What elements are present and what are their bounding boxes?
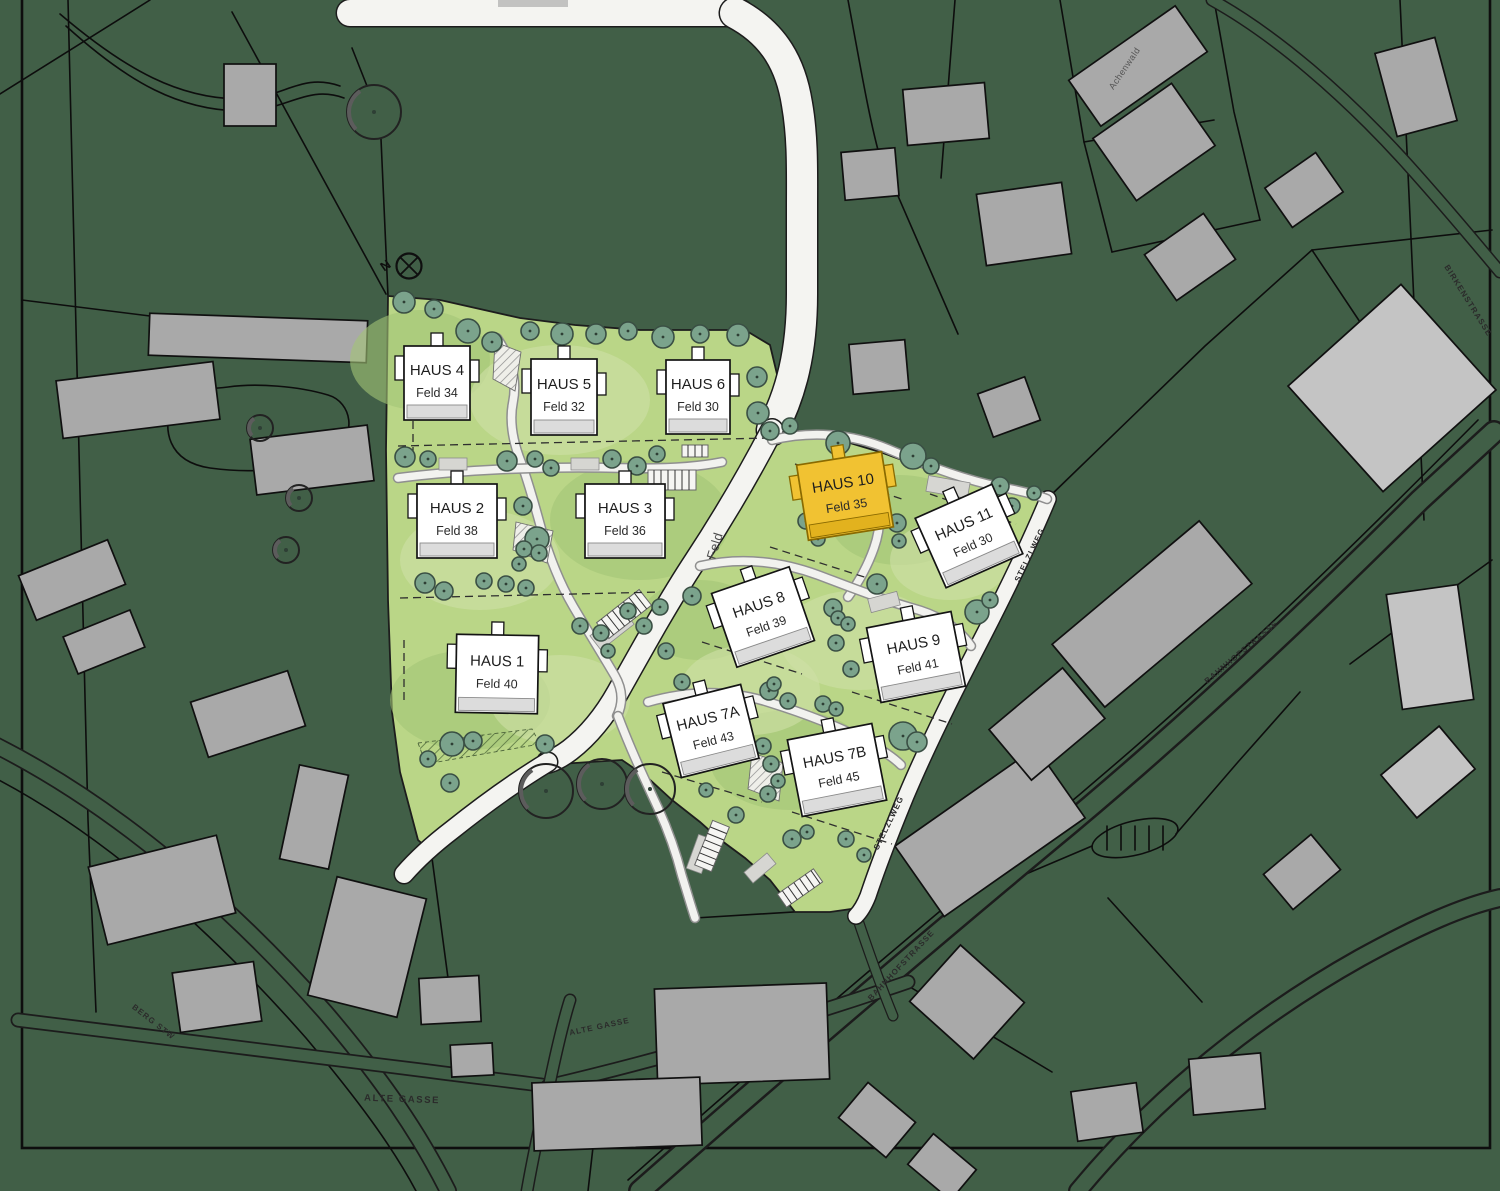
- house-terrace: [588, 543, 662, 556]
- tree-center-dot: [832, 607, 835, 610]
- tree-center-dot: [427, 458, 430, 461]
- building-footprint: [849, 340, 909, 395]
- tree-center-dot: [427, 758, 430, 761]
- house-name-label: HAUS 1: [470, 653, 524, 671]
- tree-center-dot: [787, 700, 790, 703]
- tree-center-dot: [529, 330, 532, 333]
- tree-center-dot: [611, 458, 614, 461]
- house-block-haus-2[interactable]: HAUS 2Feld 38: [408, 471, 506, 558]
- tree-center-dot: [691, 595, 694, 598]
- paved-pad: [439, 458, 467, 470]
- tree-center-dot: [284, 548, 288, 552]
- house-feld-label: Feld 40: [476, 677, 518, 692]
- tree-center-dot: [579, 625, 582, 628]
- tree-center-dot: [525, 587, 528, 590]
- tree-center-dot: [258, 426, 262, 430]
- house-name-label: HAUS 6: [671, 376, 725, 393]
- tree-center-dot: [902, 735, 905, 738]
- tree-center-dot: [483, 580, 486, 583]
- tree-center-dot: [976, 611, 979, 614]
- tree-center-dot: [297, 496, 301, 500]
- tree-center-dot: [522, 505, 525, 508]
- tree-center-dot: [837, 617, 840, 620]
- house-feld-label: Feld 30: [677, 400, 719, 414]
- house-feld-label: Feld 38: [436, 524, 478, 538]
- tree-center-dot: [600, 782, 604, 786]
- house-wing-right: [470, 360, 479, 382]
- tree-center-dot: [636, 465, 639, 468]
- house-wing-left: [447, 644, 456, 668]
- tree-center-dot: [806, 831, 809, 834]
- tree-center-dot: [648, 787, 652, 791]
- tree-center-dot: [659, 606, 662, 609]
- building-footprint: [419, 975, 481, 1024]
- house-block-haus-5[interactable]: HAUS 5Feld 32: [522, 346, 606, 435]
- tree-center-dot: [518, 563, 521, 566]
- tree-center-dot: [491, 341, 494, 344]
- tree-center-dot: [756, 376, 759, 379]
- house-name-label: HAUS 4: [410, 362, 464, 379]
- tree-center-dot: [916, 741, 919, 744]
- building-footprint: [903, 83, 990, 146]
- building-footprint: [532, 1077, 702, 1151]
- house-wing-right: [665, 498, 674, 520]
- tree-center-dot: [837, 442, 840, 445]
- tree-center-dot: [791, 838, 794, 841]
- tree-center-dot: [777, 780, 780, 783]
- tree-center-dot: [662, 336, 665, 339]
- tree-center-dot: [600, 632, 603, 635]
- house-block-haus-4[interactable]: HAUS 4Feld 34: [395, 333, 479, 420]
- tree-center-dot: [699, 333, 702, 336]
- tree-center-dot: [822, 703, 825, 706]
- tree-center-dot: [451, 743, 454, 746]
- tree-center-dot: [770, 763, 773, 766]
- truncated-street-label: [498, 0, 568, 7]
- tree-center-dot: [705, 789, 708, 792]
- house-terrace: [420, 543, 494, 556]
- tree-center-dot: [403, 301, 406, 304]
- tree-center-dot: [912, 455, 915, 458]
- house-block-haus-3[interactable]: HAUS 3Feld 36: [576, 471, 674, 558]
- building-footprint: [148, 313, 367, 363]
- house-name-label: HAUS 2: [430, 500, 484, 517]
- tree-center-dot: [372, 110, 376, 114]
- tree-center-dot: [1033, 492, 1036, 495]
- house-wing-left: [522, 369, 531, 393]
- tree-center-dot: [536, 538, 539, 541]
- tree-center-dot: [681, 681, 684, 684]
- house-wing-left: [576, 494, 585, 518]
- tree-center-dot: [472, 740, 475, 743]
- tree-center-dot: [767, 793, 770, 796]
- parking-row: [682, 445, 708, 457]
- tree-center-dot: [433, 308, 436, 311]
- tree-center-dot: [735, 814, 738, 817]
- tree-center-dot: [627, 610, 630, 613]
- house-block-haus-1[interactable]: HAUS 1Feld 40: [446, 621, 548, 714]
- house-feld-label: Feld 32: [543, 400, 585, 414]
- tree-center-dot: [467, 330, 470, 333]
- tree-center-dot: [769, 430, 772, 433]
- tree-center-dot: [523, 548, 526, 551]
- house-wing-right: [538, 650, 547, 672]
- house-terrace: [669, 419, 727, 432]
- tree-center-dot: [850, 668, 853, 671]
- building-footprint: [1071, 1083, 1143, 1142]
- tree-center-dot: [762, 745, 765, 748]
- house-wing-right: [597, 373, 606, 395]
- tree-center-dot: [989, 599, 992, 602]
- tree-center-dot: [643, 625, 646, 628]
- tree-center-dot: [544, 789, 548, 793]
- house-wing-left: [657, 370, 666, 394]
- tree-center-dot: [443, 590, 446, 593]
- tree-center-dot: [757, 412, 760, 415]
- tree-center-dot: [404, 456, 407, 459]
- house-name-label: HAUS 3: [598, 500, 652, 517]
- tree-center-dot: [424, 582, 427, 585]
- tree-center-dot: [538, 552, 541, 555]
- building-footprint: [1189, 1053, 1266, 1115]
- building-footprint: [450, 1043, 494, 1077]
- tree-center-dot: [876, 583, 879, 586]
- building-footprint: [841, 148, 899, 201]
- building-footprint: [172, 962, 262, 1033]
- tree-center-dot: [449, 782, 452, 785]
- tree-center-dot: [845, 838, 848, 841]
- house-name-label: HAUS 5: [537, 376, 591, 393]
- building-footprint: [224, 64, 276, 126]
- house-terrace: [458, 697, 534, 711]
- tree-center-dot: [835, 642, 838, 645]
- tree-center-dot: [607, 650, 610, 653]
- building-footprint: [976, 182, 1071, 265]
- house-terrace: [407, 405, 467, 418]
- house-terrace: [534, 420, 594, 433]
- tree-center-dot: [550, 467, 553, 470]
- house-feld-label: Feld 34: [416, 386, 458, 400]
- building-footprint: [1386, 585, 1473, 710]
- tree-center-dot: [773, 683, 776, 686]
- house-wing-left: [395, 356, 404, 380]
- tree-center-dot: [863, 854, 866, 857]
- tree-center-dot: [561, 333, 564, 336]
- tree-center-dot: [896, 522, 899, 525]
- tree-center-dot: [534, 458, 537, 461]
- tree-center-dot: [789, 425, 792, 428]
- house-wing-right: [730, 374, 739, 396]
- tree-center-dot: [930, 465, 933, 468]
- tree-center-dot: [595, 333, 598, 336]
- paved-pad: [571, 458, 599, 470]
- tree-center-dot: [544, 743, 547, 746]
- site-plan-map: HAUS 4Feld 34HAUS 5Feld 32HAUS 6Feld 30H…: [0, 0, 1500, 1191]
- tree-center-dot: [835, 708, 838, 711]
- house-block-haus-6[interactable]: HAUS 6Feld 30: [657, 347, 739, 434]
- house-wing-left: [408, 494, 417, 518]
- tree-center-dot: [505, 583, 508, 586]
- tree-center-dot: [627, 330, 630, 333]
- tree-center-dot: [898, 540, 901, 543]
- tree-center-dot: [999, 485, 1002, 488]
- tree-center-dot: [737, 334, 740, 337]
- house-feld-label: Feld 36: [604, 524, 646, 538]
- tree-center-dot: [665, 650, 668, 653]
- house-wing-right: [497, 498, 506, 520]
- tree-center-dot: [656, 453, 659, 456]
- tree-center-dot: [506, 460, 509, 463]
- tree-center-dot: [847, 623, 850, 626]
- building-footprint: [654, 983, 829, 1085]
